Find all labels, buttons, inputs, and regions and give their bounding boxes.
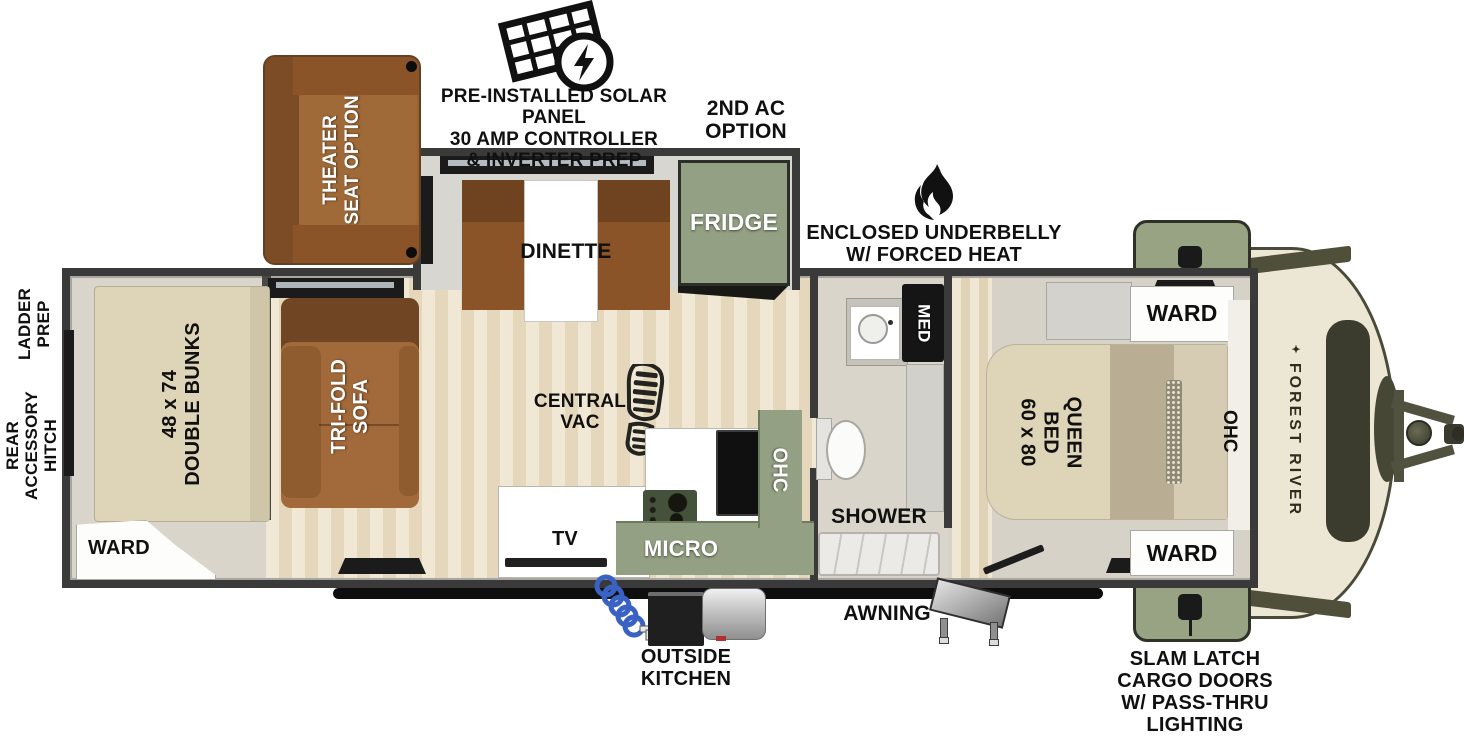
med-label: MED	[914, 304, 933, 342]
dinette-bench-left-back	[462, 180, 524, 222]
wall-bath-right	[944, 276, 952, 528]
rear-hitch-line2: ACCESSORY	[21, 392, 40, 501]
tv-unit	[505, 558, 607, 567]
shower-pan	[818, 532, 940, 576]
front-cap-brand: ✦ FOREST RIVER	[1256, 300, 1332, 562]
sofa-label-line2: SOFA	[350, 359, 372, 454]
range-oven	[716, 430, 762, 516]
dinette-label: DINETTE	[506, 240, 626, 263]
outside-kitchen-tank-valve	[716, 636, 726, 641]
theater-label-line2: SEAT OPTION	[342, 95, 364, 225]
underbelly-line2: W/ FORCED HEAT	[798, 244, 1070, 266]
underbelly-callout-text: ENCLOSED UNDERBELLY W/ FORCED HEAT	[798, 222, 1070, 267]
ward-front-bottom-label: WARD	[1130, 541, 1234, 566]
dinette-bench-right-back	[598, 180, 670, 222]
queen-type-text: QUEEN BED	[1039, 384, 1085, 480]
queen-bed-comforter	[1110, 345, 1174, 519]
sofa-label-line1: TRI-FOLD	[328, 359, 350, 454]
bedroom-ohc: OHC	[1208, 400, 1248, 462]
floorplan-canvas: ✦ FOREST RIVER 48 x 74 DOUBLE BUNKS WARD	[0, 0, 1464, 738]
hitch-coupler-ball	[1452, 427, 1464, 441]
theater-label-line1: THEATER	[320, 95, 342, 225]
outside-kitchen-label: OUTSIDE KITCHEN	[606, 646, 766, 691]
steps-leg-left	[940, 618, 948, 638]
flame-icon	[912, 164, 956, 220]
outside-kitchen-line1: OUTSIDE	[606, 646, 766, 668]
slam-latch-callout: SLAM LATCH CARGO DOORS W/ PASS-THRU LIGH…	[1100, 648, 1290, 736]
steps-leg-right	[990, 622, 998, 640]
bath-sink-drain	[888, 320, 893, 325]
ladder-prep-line1: LADDER	[15, 288, 34, 360]
kitchen-ohc-label: OHC	[769, 447, 791, 492]
solar-panel-icon	[492, 0, 622, 94]
awning-label: AWNING	[834, 602, 940, 625]
rear-hitch-line1: REAR	[2, 392, 21, 501]
queen-size-text: 60 x 80	[1016, 384, 1039, 480]
toilet-bowl	[826, 420, 866, 480]
solar-line3: & INVERTER PREP	[416, 150, 692, 171]
rear-hitch-callout: REAR ACCESSORY HITCH	[0, 380, 64, 512]
second-ac-line2: OPTION	[698, 121, 794, 144]
window-sofa-top	[268, 278, 404, 298]
dinette-window-left	[421, 176, 433, 264]
bunk-type-text: DOUBLE BUNKS	[182, 322, 205, 486]
cargo-door-top-latch-icon	[1178, 246, 1202, 268]
bath-sink-bowl	[858, 314, 888, 344]
slam-latch-line3: W/ PASS-THRU	[1100, 692, 1290, 714]
bunk-size-text: 48 x 74	[159, 322, 182, 486]
outside-kitchen-griddle	[648, 592, 704, 646]
steps-foot-right	[989, 639, 999, 646]
shower-label: SHOWER	[818, 505, 940, 528]
window-bottom-left	[338, 558, 426, 574]
slam-latch-line1: SLAM LATCH	[1100, 648, 1290, 670]
outside-kitchen-tank	[702, 588, 766, 640]
hitch-crossbar	[1394, 390, 1404, 482]
headboard-speaker	[1166, 380, 1182, 484]
cargo-door-bottom-latch-stem	[1189, 620, 1192, 636]
slam-latch-line4: LIGHTING	[1100, 714, 1290, 736]
brand-text: FOREST RIVER	[1286, 363, 1303, 517]
outside-kitchen-line2: KITCHEN	[606, 668, 766, 690]
theater-seat-label: THEATER SEAT OPTION	[263, 55, 421, 265]
micro-label: MICRO	[616, 537, 746, 561]
brand-emblem-icon: ✦	[1289, 345, 1301, 363]
bedroom-dresser	[1046, 282, 1132, 340]
entry-steps	[928, 582, 1018, 640]
ladder-prep-line2: PREP	[34, 288, 53, 360]
tv-label: TV	[540, 528, 590, 550]
ladder-prep-callout: LADDER PREP	[2, 268, 66, 380]
ward-rear-label: WARD	[82, 537, 156, 559]
solar-line1: PRE-INSTALLED SOLAR PANEL	[416, 86, 692, 129]
rear-hitch-line3: HITCH	[41, 392, 60, 501]
bunk-bed-label: 48 x 74 DOUBLE BUNKS	[94, 286, 270, 522]
bath-counter-right	[906, 364, 944, 512]
ward-front-top-label: WARD	[1130, 301, 1234, 326]
fridge-label: FRIDGE	[678, 210, 790, 235]
front-cap-window	[1326, 320, 1370, 542]
kitchen-ohc: OHC	[758, 428, 802, 512]
steps-foot-left	[939, 637, 949, 644]
cargo-door-bottom-latch-icon	[1178, 594, 1202, 620]
slam-latch-line2: CARGO DOORS	[1100, 670, 1290, 692]
window-sofa-top-glass	[276, 282, 394, 288]
underbelly-line1: ENCLOSED UNDERBELLY	[798, 222, 1070, 244]
queen-bed-label: 60 x 80 QUEEN BED	[1002, 356, 1098, 508]
second-ac-callout: 2ND AC OPTION	[698, 98, 794, 143]
hitch-jack-wheel	[1406, 420, 1432, 446]
med-cabinet-label-wrap: MED	[902, 284, 944, 362]
wall-bath-left-upper	[810, 276, 818, 418]
solar-line2: 30 AMP CONTROLLER	[416, 129, 692, 150]
solar-callout-text: PRE-INSTALLED SOLAR PANEL 30 AMP CONTROL…	[416, 86, 692, 171]
bedroom-ohc-label: OHC	[1218, 410, 1239, 453]
second-ac-line1: 2ND AC	[698, 98, 794, 121]
tri-fold-sofa-label: TRI-FOLD SOFA	[281, 308, 419, 504]
